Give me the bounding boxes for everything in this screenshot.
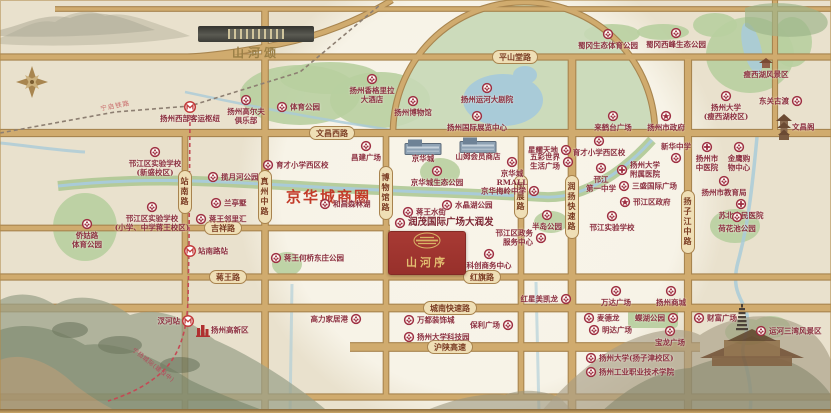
poi-label: 邗江区实验学校 (小学、中学蒋王校区) xyxy=(115,214,190,233)
landmark-flower-icon xyxy=(619,181,630,192)
poi-label: 邗江 第一中学 xyxy=(586,175,616,194)
poi-label: 扬州高新区 xyxy=(211,325,249,334)
poi-label: 蒋王邻里汇 xyxy=(209,214,247,223)
poi-label: 京华城 RMALL xyxy=(497,169,528,188)
poi-label: 和昌森林湖 xyxy=(333,199,371,208)
metro-station-icon xyxy=(184,245,197,258)
poi-label: 揽月河公园 xyxy=(221,172,259,181)
landmark-flower-icon xyxy=(671,28,682,39)
poi-label: 蝶湖公园 xyxy=(635,313,665,322)
landmark-flower-icon xyxy=(271,253,282,264)
landmark-flower-icon xyxy=(732,212,743,223)
landmark-flower-icon xyxy=(596,163,607,174)
landmark-flower-icon xyxy=(432,166,443,177)
poi-label: 文昌阁 xyxy=(792,122,815,131)
landmark-flower-icon xyxy=(503,320,514,331)
poi-label: 宝龙广场 xyxy=(655,338,685,347)
poi-label: 东关古渡 xyxy=(759,96,789,105)
poi-label: 兰亭墅 xyxy=(224,198,247,207)
landmark-flower-icon xyxy=(208,172,219,183)
poi-label: 扬州大学 附属医院 xyxy=(630,161,660,180)
landmark-flower-icon xyxy=(403,207,414,218)
poi-label: 万都装饰城 xyxy=(417,315,455,324)
poi-label: 蒋王何桥东庄公园 xyxy=(284,253,344,262)
map-root: 平山堂路文昌西路吉祥路蒋王路红旗路城南快速路沪陕高速站南路真州中路博物馆路国展路… xyxy=(0,0,831,413)
landmark-flower-icon xyxy=(586,367,597,378)
poi-label: 扬州高尔夫 俱乐部 xyxy=(227,107,265,126)
poi-label: 蜀冈西峰生态公园 xyxy=(646,40,706,49)
poi-label: 新华中学 xyxy=(661,142,691,151)
landmark-flower-icon xyxy=(671,153,682,164)
landmark-flower-icon xyxy=(150,147,161,158)
project-logo-box: 山河序 xyxy=(388,231,466,275)
landmark-flower-icon xyxy=(361,141,372,152)
poi-label: 润茂国际广场大润发 xyxy=(408,217,494,229)
landmark-flower-icon xyxy=(404,315,415,326)
poi-label: 五彩世界 生活广场 xyxy=(530,153,560,172)
landmark-flower-icon xyxy=(472,111,483,122)
poi-label: 万达广场 xyxy=(601,298,631,307)
mall-photo-icon xyxy=(459,137,497,154)
poi-label: 京华梅岭中学 xyxy=(481,186,526,195)
poi-label: 育才小学西区校 xyxy=(276,160,329,169)
landmark-flower-icon xyxy=(482,83,493,94)
landmark-flower-icon xyxy=(561,145,572,156)
landmark-flower-icon xyxy=(529,186,540,197)
government-star-icon xyxy=(661,111,672,122)
landmark-flower-icon xyxy=(542,210,553,221)
landmark-flower-icon xyxy=(147,202,158,213)
sister-building-image xyxy=(198,26,314,42)
poi-label: 扬州大学 (瘦西湖校区) xyxy=(704,103,749,122)
poi-label: 扬州博物馆 xyxy=(394,108,432,117)
landmark-flower-icon xyxy=(756,326,767,337)
landmark-flower-icon xyxy=(196,214,207,225)
poi-label: 财富广场 xyxy=(707,313,737,322)
poi-label: 邗江实验学校 xyxy=(590,223,635,232)
road-label: 平山堂路 xyxy=(492,50,538,64)
poi-label: 侨姑路 体育公园 xyxy=(72,231,102,250)
landmark-flower-icon xyxy=(719,176,730,187)
landmark-flower-icon xyxy=(507,157,518,168)
landmark-flower-icon xyxy=(584,313,595,324)
road-label: 文昌西路 xyxy=(309,126,355,140)
poi-label: 科创商务中心 xyxy=(467,261,512,270)
hightech-zone-building-icon xyxy=(195,322,211,338)
poi-label: 扬州西部客运枢纽 xyxy=(160,114,220,123)
mall-photo-icon xyxy=(404,139,442,156)
poi-label: 半岛公园 xyxy=(532,222,562,231)
landmark-flower-icon xyxy=(404,332,415,343)
road-label: 真州中路 xyxy=(258,170,272,224)
road-label: 沪陕高速 xyxy=(427,340,473,354)
poi-label: 瘦西湖风景区 xyxy=(744,70,789,79)
poi-label: 麦德龙 xyxy=(597,313,620,322)
map-frame-bottom xyxy=(0,409,831,413)
project-name: 山河序 xyxy=(389,254,465,270)
poi-label: 保利广场 xyxy=(470,320,500,329)
poi-label: 荷花池公园 xyxy=(718,224,756,233)
poi-label: 扬州国际展览中心 xyxy=(447,123,507,132)
landmark-flower-icon xyxy=(241,95,252,106)
poi-label: 邗江区政务 服务中心 xyxy=(496,229,534,248)
poi-label: 明达广场 xyxy=(602,325,632,334)
road-label: 红旗路 xyxy=(463,270,501,284)
poi-label: 京华城 xyxy=(412,154,435,163)
landmark-flower-icon xyxy=(603,29,614,40)
landmark-flower-icon xyxy=(666,286,677,297)
temple-icon xyxy=(758,57,774,69)
landmark-flower-icon xyxy=(611,286,622,297)
landmark-flower-icon xyxy=(589,325,600,336)
project-emblem-icon xyxy=(412,234,442,253)
poi-label: 山姆会员商店 xyxy=(456,152,501,161)
landmark-flower-icon xyxy=(586,353,597,364)
poi-label: 蜀冈生态体育公园 xyxy=(578,41,638,50)
poi-label: 金鹰购 物中心 xyxy=(728,154,751,173)
landmark-flower-icon xyxy=(536,233,547,244)
landmark-flower-icon xyxy=(408,96,419,107)
landmark-flower-icon xyxy=(561,294,572,305)
poi-label: 扬州市政府 xyxy=(647,123,685,132)
landmark-flower-icon xyxy=(320,199,331,210)
road-label: 城南快速路 xyxy=(423,301,477,315)
landmark-flower-icon xyxy=(792,96,803,107)
road-label: 蒋王路 xyxy=(209,270,247,284)
poi-label: 扬州商城 xyxy=(656,298,686,307)
landmark-flower-icon xyxy=(594,136,605,147)
poi-label: 汊河站 xyxy=(158,316,181,325)
landmark-flower-icon xyxy=(263,160,274,171)
hospital-cross-icon xyxy=(702,142,713,153)
metro-station-icon xyxy=(182,315,195,328)
poi-label: 昌建广场 xyxy=(351,153,381,162)
landmark-flower-icon xyxy=(721,91,732,102)
government-star-icon xyxy=(620,197,631,208)
hospital-cross-icon xyxy=(617,165,628,176)
poi-label: 扬州香格里拉 大酒店 xyxy=(350,86,395,105)
road-label: 博物馆路 xyxy=(379,166,393,220)
landmark-flower-icon xyxy=(484,249,495,260)
landmark-flower-icon xyxy=(211,198,222,209)
poi-label: 育才小学西区校 xyxy=(573,148,626,157)
landmark-flower-icon xyxy=(82,219,93,230)
poi-label: 扬州市教育局 xyxy=(702,188,747,197)
landmark-flower-icon xyxy=(277,102,288,113)
poi-label: 体育公园 xyxy=(290,102,320,111)
sister-project-logo: 山河颂 xyxy=(198,26,314,61)
poi-label: 扬州市 中医院 xyxy=(696,154,719,173)
poi-layer: 扬州西部客运枢纽扬州高尔夫 俱乐部体育公园扬州香格里拉 大酒店扬州博物馆扬州运河… xyxy=(0,0,831,413)
landmark-flower-icon xyxy=(563,157,574,168)
poi-label: 运河三湾风景区 xyxy=(769,326,822,335)
road-label: 润扬快速路 xyxy=(565,175,579,239)
landmark-flower-icon xyxy=(608,111,619,122)
poi-label: 扬州大学(扬子津校区) xyxy=(599,353,674,362)
landmark-flower-icon xyxy=(395,218,406,229)
poi-label: 扬州工业职业技术学院 xyxy=(599,367,674,376)
landmark-flower-icon xyxy=(351,314,362,325)
poi-label: 来鹤台广场 xyxy=(594,123,632,132)
poi-label: 水晶湖公园 xyxy=(455,200,493,209)
landmark-flower-icon xyxy=(694,313,705,324)
poi-label: 三盛国际广场 xyxy=(632,181,677,190)
poi-label: 高力家居港 xyxy=(311,314,349,323)
landmark-flower-icon xyxy=(607,211,618,222)
poi-label: 红星美凯龙 xyxy=(521,294,559,303)
hospital-cross-icon xyxy=(736,199,747,210)
metro-station-icon xyxy=(184,101,197,114)
poi-label: 扬州运河大剧院 xyxy=(461,95,514,104)
poi-label: 邗江区政府 xyxy=(633,197,671,206)
landmark-flower-icon xyxy=(668,313,679,324)
landmark-flower-icon xyxy=(367,74,378,85)
poi-label: 京华城生态公园 xyxy=(411,178,464,187)
poi-label: 邗江区实验学校 (新盛校区) xyxy=(129,159,182,178)
poi-label: 扬州大学科技园 xyxy=(417,332,470,341)
landmark-flower-icon xyxy=(734,142,745,153)
poi-label: 站南路站 xyxy=(198,246,228,255)
poi-label: 蒋王水街 xyxy=(416,207,446,216)
sister-project-name: 山河颂 xyxy=(198,44,314,61)
landmark-flower-icon xyxy=(665,326,676,337)
road-label: 扬子江中路 xyxy=(681,190,695,254)
